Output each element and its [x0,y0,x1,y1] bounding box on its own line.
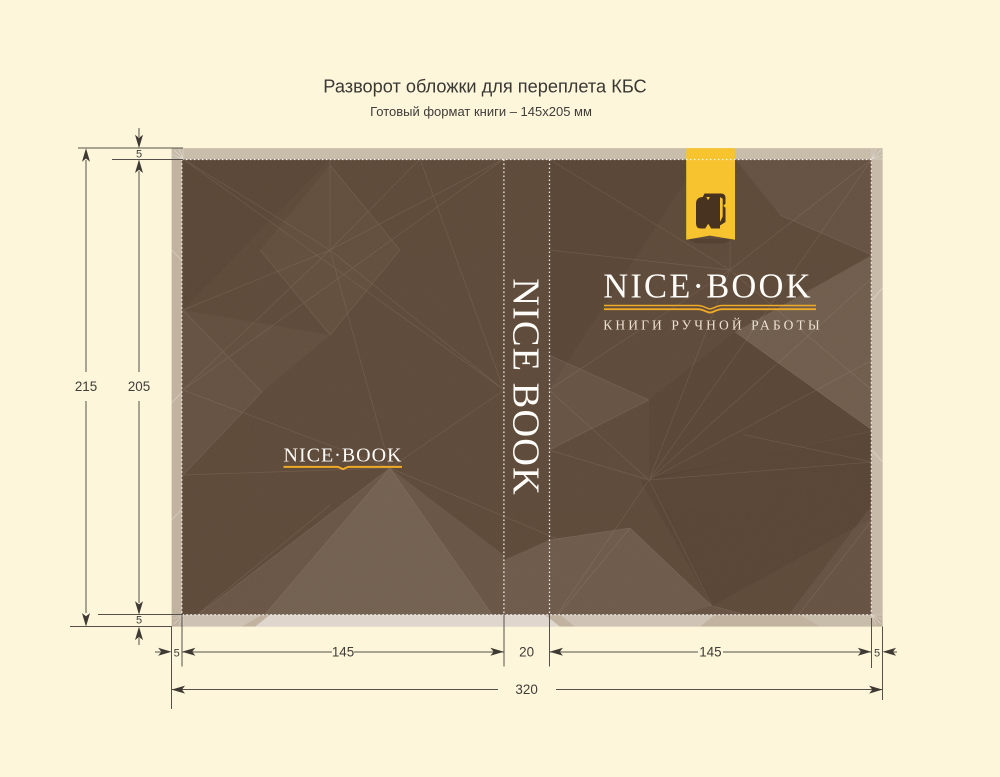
svg-text:205: 205 [128,379,150,394]
svg-text:NICE BOOK: NICE BOOK [504,278,546,496]
svg-text:5: 5 [174,647,180,659]
svg-text:КНИГИ РУЧНОЙ РАБОТЫ: КНИГИ РУЧНОЙ РАБОТЫ [603,318,822,333]
svg-text:5: 5 [136,149,142,161]
svg-text:145: 145 [699,644,721,659]
svg-text:145: 145 [332,644,354,659]
svg-text:320: 320 [515,682,537,697]
svg-text:NICE·BOOK: NICE·BOOK [603,268,813,306]
svg-text:Разворот обложки для переплета: Разворот обложки для переплета КБС [323,77,646,97]
svg-text:5: 5 [874,647,880,659]
svg-text:215: 215 [75,379,97,394]
svg-text:Готовый формат книги – 145x205: Готовый формат книги – 145x205 мм [370,104,592,119]
svg-text:5: 5 [136,615,142,627]
svg-text:NICE·BOOK: NICE·BOOK [284,445,403,467]
svg-text:20: 20 [519,644,534,659]
